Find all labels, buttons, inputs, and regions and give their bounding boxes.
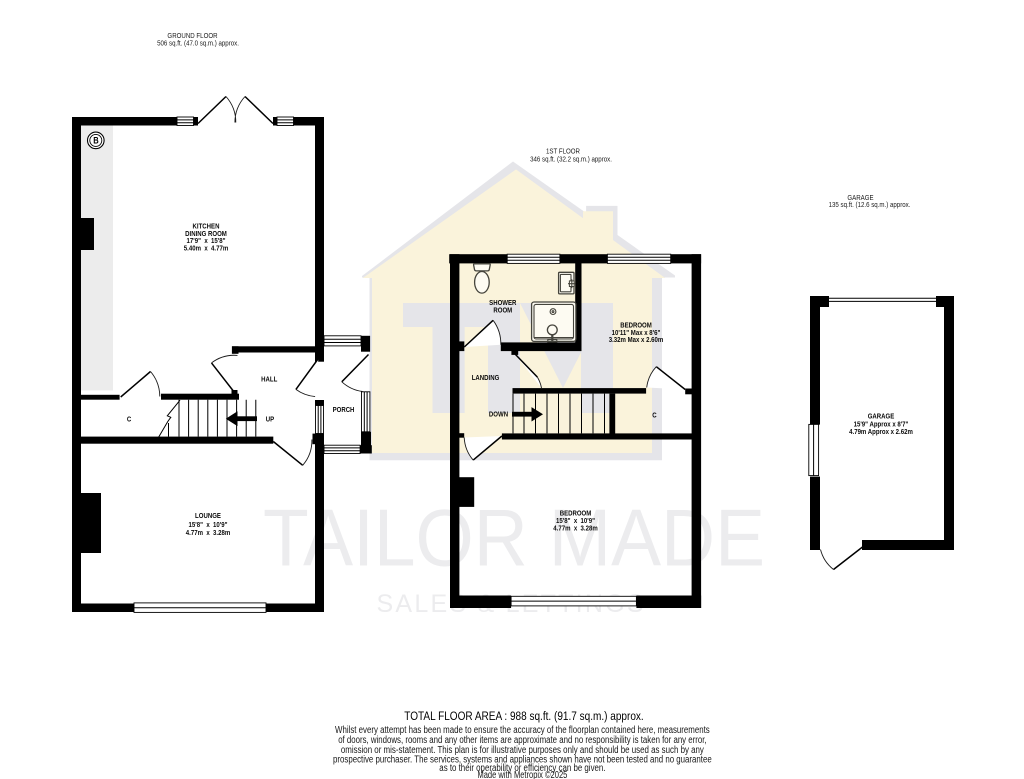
svg-text:5.40m x 4.77m: 5.40m x 4.77m [184,245,228,253]
svg-text:135 sq.ft. (12.6 sq.m.) approx: 135 sq.ft. (12.6 sq.m.) approx. [829,201,911,209]
svg-text:PORCH: PORCH [333,407,355,415]
svg-text:ROOM: ROOM [493,307,512,315]
svg-text:LANDING: LANDING [472,375,500,383]
svg-text:4.77m x 3.28m: 4.77m x 3.28m [186,530,230,538]
svg-text:TAILOR MADE: TAILOR MADE [263,492,765,583]
svg-text:3.32m Max x 2.60m: 3.32m Max x 2.60m [609,336,664,344]
svg-text:TOTAL FLOOR AREA : 988 sq.ft.: TOTAL FLOOR AREA : 988 sq.ft. (91.7 sq.m… [404,709,643,723]
svg-text:GARAGE: GARAGE [868,413,895,421]
svg-text:1ST FLOOR: 1ST FLOOR [546,148,580,156]
svg-text:BEDROOM: BEDROOM [620,322,652,330]
svg-text:B: B [93,135,98,146]
svg-text:4.79m Approx x 2.62m: 4.79m Approx x 2.62m [849,429,913,437]
svg-text:Made with Metropix ©2025: Made with Metropix ©2025 [477,770,567,779]
svg-text:4.77m x 3.28m: 4.77m x 3.28m [553,525,597,533]
svg-text:UP: UP [266,416,275,424]
svg-text:15'9" Approx x 8'7": 15'9" Approx x 8'7" [854,421,909,429]
svg-text:C: C [652,412,656,420]
svg-text:346 sq.ft. (32.2 sq.m.) approx: 346 sq.ft. (32.2 sq.m.) approx. [530,156,612,164]
svg-text:DOWN: DOWN [489,411,508,419]
svg-text:HALL: HALL [261,376,277,384]
svg-text:C: C [127,416,131,424]
svg-text:LOUNGE: LOUNGE [195,512,221,520]
svg-text:506 sq.ft. (47.0 sq.m.) approx: 506 sq.ft. (47.0 sq.m.) approx. [157,40,239,48]
svg-text:15'8" x 10'9": 15'8" x 10'9" [189,521,228,529]
